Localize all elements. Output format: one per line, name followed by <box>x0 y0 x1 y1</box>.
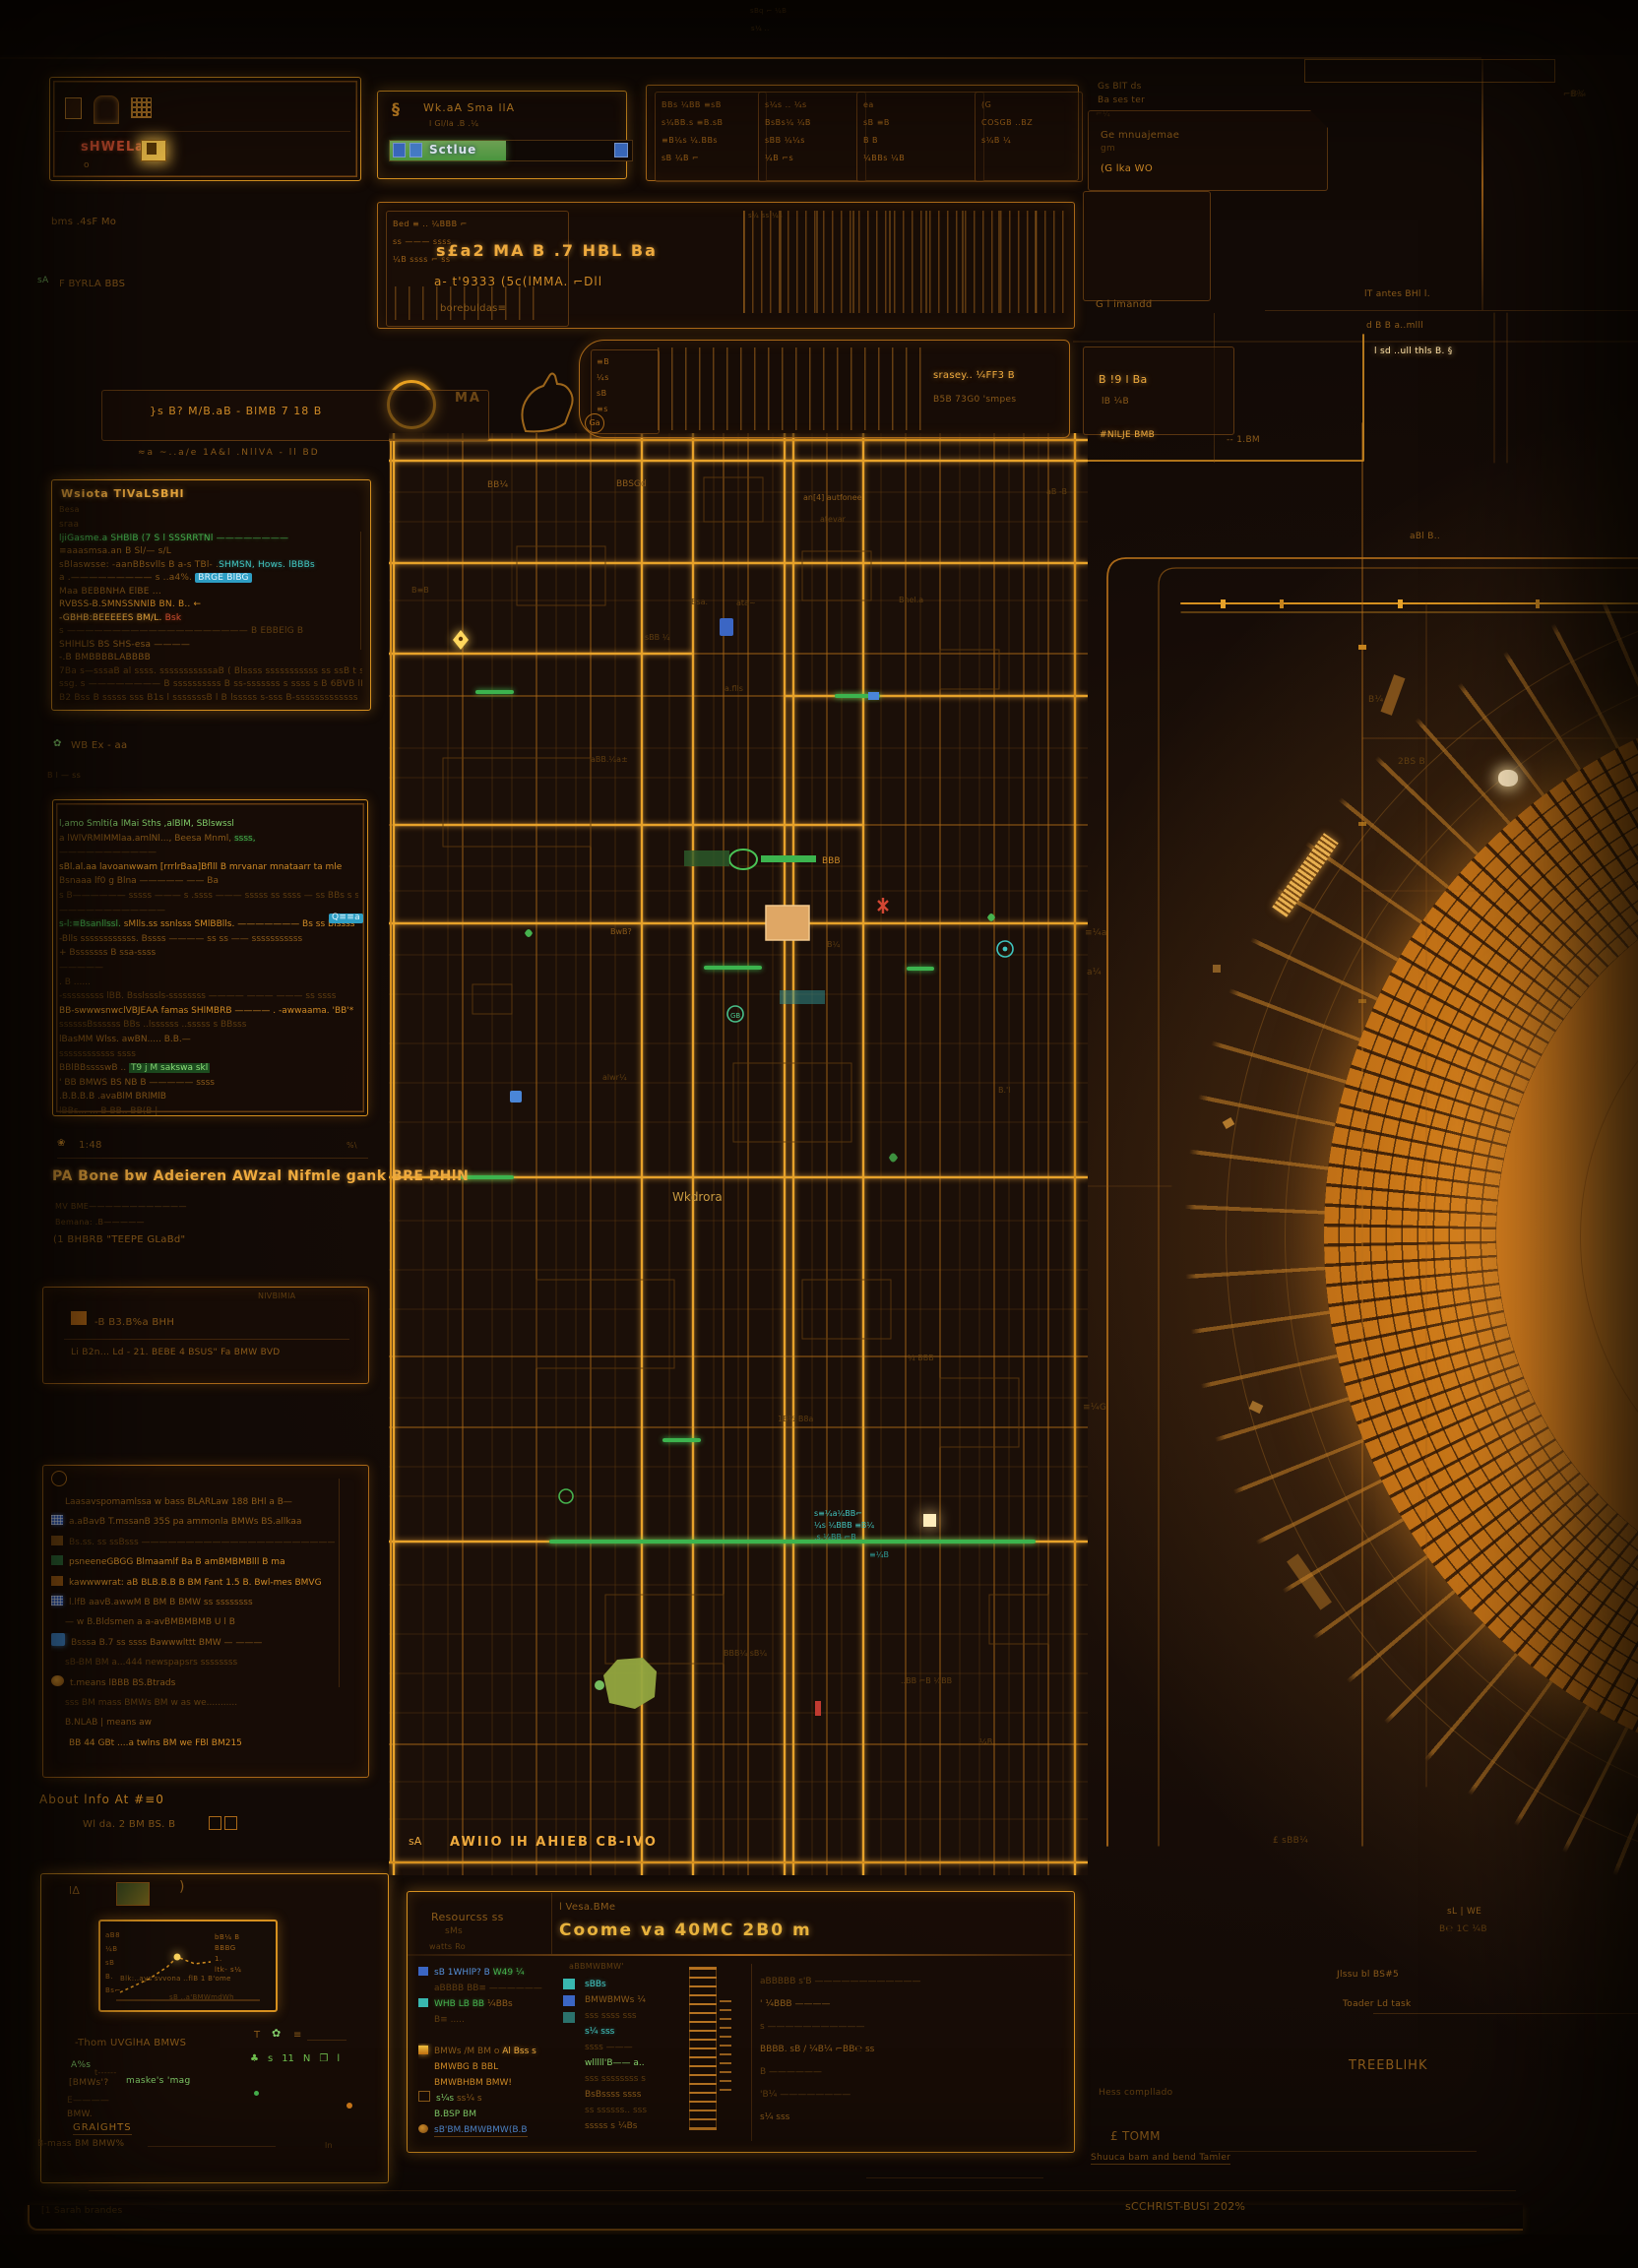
bc-row: sss ssss sss <box>585 2008 687 2024</box>
bottom-right-text: £ TOMM <box>1110 2130 1161 2143</box>
chart-note: bB¼ B <box>215 1929 241 1940</box>
bc-head-right1: l Vesa.BMe <box>559 1902 615 1913</box>
stack-icon <box>71 1311 87 1325</box>
top-tiny-text: s¼ .. <box>751 26 770 33</box>
bl-bottom-line: B-mass BM BMW% <box>37 2140 124 2150</box>
bl-list-row-sub: t------ <box>94 2069 117 2078</box>
text-row: s ———————————————————— B EBBElG B <box>59 625 362 639</box>
map-label: BB¼ <box>487 480 508 490</box>
text-row: ssg. s ———————— B ssssssssss B ss-ssssss… <box>59 678 362 692</box>
trace-label: -- 1.BM <box>1227 436 1260 446</box>
feed-circle-icon <box>51 1471 67 1486</box>
bc-row-icon <box>418 2077 428 2086</box>
feed-row-icon <box>51 1615 59 1625</box>
bc-row: sBBs <box>585 1977 687 1992</box>
lit-indicator-glyph <box>147 143 157 155</box>
feed-row[interactable]: sB-BM BM a...444 newspapsrs ssssssss <box>51 1653 335 1672</box>
text-row: ——————————— <box>59 846 358 860</box>
text-row: RVBSS-B.SMNSSNNlB BN. B.. ← <box>59 598 362 612</box>
chart-caption: Blk:..ays svvona ..flB 1 B'ome <box>120 1976 231 1984</box>
green-dot <box>254 2091 259 2096</box>
divider <box>57 1158 368 1159</box>
map-label: ata~ <box>736 598 756 607</box>
text-row: 7Ba s—sssaB al ssss. sssssssssssaB ( Bls… <box>59 665 362 679</box>
status-logo-glyph: § <box>392 100 400 118</box>
panel-top-right-cut <box>1088 110 1328 191</box>
bc-row-icon <box>418 2014 428 2023</box>
sub-line: (1 BHBRB "TEEPE GLaBd" <box>53 1234 185 1245</box>
feed-row[interactable]: Bsssa B.7 ss ssss Bawwwlttt BMW — ——— <box>51 1633 335 1653</box>
toolbar-glyph-row: s¼B ¼ <box>981 132 1076 150</box>
status-progress-label: Sctlue <box>429 143 476 157</box>
bc-row-icon <box>418 2124 428 2133</box>
feed-footer-title: About lnfo At #≡0 <box>39 1794 164 1806</box>
qr-icon[interactable] <box>131 97 152 118</box>
map-label: a.flls <box>724 684 743 693</box>
toolbar-box-2[interactable]: s¼s .. ¼sBsBs¼ ¼BsBB ¼¼s¼B ⌐s <box>758 92 866 182</box>
left-row-label2: F BYRLA BBS <box>59 279 125 289</box>
chart-subcaption: sB ..a'BMWmdWh <box>169 1994 234 2002</box>
bc-row-icon <box>418 2046 428 2054</box>
trace-label: ≡¼a <box>1085 929 1107 939</box>
text-row: sraa <box>59 519 362 533</box>
trace-label: #NlLJE BMB <box>1100 431 1155 441</box>
arch-window-icon[interactable] <box>94 95 119 124</box>
feed-rows: Laasavspomamlssa w bass BLARLaw 188 BHl … <box>51 1492 335 1756</box>
bc-row: ' ¼BBB ———— <box>760 1993 1065 2016</box>
feed-row[interactable]: sss BM mass BMWs BM w as we........... <box>51 1693 335 1713</box>
feed-row[interactable]: t.means lBBB BS.Btrads <box>51 1673 335 1693</box>
text-row: ljiGasme.a SHBlB (7 S l SSSRRTNl ———————… <box>59 533 362 546</box>
feed-row-icon <box>51 1656 59 1666</box>
row3-panel-text2: B5B 73G0 'smpes <box>933 396 1016 406</box>
feed-row-icon <box>51 1675 64 1686</box>
text-row: BB-swwwsnwclVBJEAA famas SHlMBRB ———— . … <box>59 1004 358 1019</box>
text-row: Bsnaaa lf0 g Blna ————— —— Ba <box>59 874 358 889</box>
feed-row[interactable]: Bs.ss. ss ssBsss ———————————————————————… <box>51 1533 335 1552</box>
bc-row[interactable]: WHB LB BB ¼BBs <box>418 1996 558 2012</box>
text-row: l,amo Smlti(a lMai Sths ,alBlM, SBlswssl <box>59 817 358 832</box>
map-label: B¼ <box>827 940 840 949</box>
bc-row[interactable]: B.BSP BM <box>418 2107 558 2122</box>
toolbar-glyph-row: ¼B ⌐s <box>765 150 859 167</box>
bc-row: ssss ——— <box>585 2040 687 2055</box>
bc-col2-head: aBBMWBMW' <box>569 1963 624 1972</box>
bottom-dark-band <box>0 2235 1638 2268</box>
bc-head-left3: watts Ro <box>429 1943 466 1952</box>
bc-row[interactable]: B≡ ..... <box>418 2012 558 2028</box>
bl-icon-t: T <box>254 2030 260 2041</box>
bc-row: BBBB. sB / ¼B¼ ⌐BB℮ ss <box>760 2039 1065 2061</box>
mini-row1: -B B3.B%a BHH <box>94 1317 174 1328</box>
document-icon[interactable] <box>65 97 82 119</box>
bl-bottom-right: ln <box>325 2142 333 2151</box>
text-row: sBl.al.aa lavoanwwam [rrrlrBaa]Bflll B m… <box>59 860 358 875</box>
text-row: BBlBBsssswB .. T9 j M sakswa skl <box>59 1061 358 1076</box>
feed-row-icon <box>51 1736 63 1746</box>
map-label: BBB¼ sB¼ <box>724 1649 767 1658</box>
text-row: -Blls ssssssssssss. Bssss ———— ss ss —— … <box>59 932 358 947</box>
ytick: Bs⌐ <box>105 1983 121 1996</box>
row3-panel-text: srasey.. ¼FF3 B <box>933 370 1015 381</box>
bc-row: s¼ sss <box>760 2107 1065 2129</box>
text-row: -sssssssss lBB. Bsslsssls-ssssssss ———— … <box>59 989 358 1004</box>
bc-head-title: Coome va 40MC 2B0 m <box>559 1921 812 1940</box>
feed-footer-line: Wl da. 2 BM BS. B <box>83 1819 175 1830</box>
bc-row: sss ssssssss s <box>585 2071 687 2087</box>
glyph-row: ≡s <box>597 401 654 416</box>
text-row: -.B BMBBBBLABBBB <box>59 652 362 665</box>
chart-note: 1. <box>215 1951 241 1962</box>
map-label-cyan: s≡¼a¼BB⌐ <box>814 1509 862 1518</box>
row3-right-text2: lB ¼B <box>1102 398 1129 408</box>
toolbar-glyph-row: BBs ¼BB ≡sB <box>661 96 760 114</box>
bc-row: sssss s ¼Bs <box>585 2118 687 2134</box>
bc-row[interactable] <box>418 2028 558 2044</box>
poi-blue-tile[interactable] <box>720 618 733 636</box>
chart-right-rows: bB¼ BBBBG1.ltk- s¼ <box>215 1929 241 1973</box>
bl-row-label: -Thom UVGlHA BMWS <box>75 2038 186 2048</box>
bc-row-icon <box>418 2091 430 2102</box>
trace-label: ≡¼G <box>1083 1404 1106 1414</box>
tiny-icon[interactable]: s <box>268 2053 273 2064</box>
text-row: ssssssssssss ssss <box>59 1047 358 1062</box>
cluster-line: Ba ses ter <box>1098 96 1145 106</box>
map-label: aB -B <box>1046 487 1067 496</box>
small-marker: o <box>84 161 90 171</box>
left-row-label: bms .4sF Mo <box>51 217 116 227</box>
bc-row-icon <box>418 1983 428 1991</box>
trace-label: B¼ <box>1368 696 1384 706</box>
bc-head-left2: sMs <box>445 1927 463 1937</box>
status-subtitle: l Gl/la .B .¼ <box>429 120 478 129</box>
text-row: s B—————— sssss ——— s .ssss ——— sssss ss… <box>59 889 358 904</box>
flower-icon: ✿ <box>53 738 62 749</box>
frame-notch-box <box>1304 59 1555 83</box>
map-label: ..BB ⌐B ¼BB <box>901 1676 952 1685</box>
feed-row-icon <box>51 1495 59 1505</box>
bc-row-icon <box>418 1998 428 2007</box>
left-panel2-rows: l,amo Smlti(a lMai Sths ,alBlM, SBlswssl… <box>59 817 358 1106</box>
headline: PA Bone bw Adeieren AWzal Nifmle gank BR… <box>52 1169 469 1184</box>
feed-row-icon <box>51 1515 63 1525</box>
br-rule <box>1211 2151 1477 2152</box>
status-title: Wk.aA Sma llA <box>423 102 515 114</box>
map-label-cyan: .s.¼BB ⌐B <box>814 1533 856 1542</box>
map-label: BBSGd <box>616 479 647 489</box>
map-label: B.'l <box>998 1086 1010 1095</box>
flower-icon: ❀ <box>57 1138 66 1149</box>
feed-row[interactable]: B.NLAB | means aw <box>51 1713 335 1732</box>
bottom-right-text: Jlssu bl BS#5 <box>1337 1971 1399 1981</box>
feed-row[interactable]: psneeneGBGG Blmaamlf Ba B amBMBMBlll B m… <box>51 1552 335 1572</box>
bl-list-row4b[interactable]: GRAlGHTS <box>73 2122 132 2135</box>
br-rule2 <box>866 2177 1043 2178</box>
text-row: .B.B.B.B .avaBlM BRlMlB <box>59 1090 358 1104</box>
bl-list-row: A%s <box>71 2061 91 2071</box>
toolbar-glyph-row: COSGB ..BZ <box>981 114 1076 132</box>
tiny-icon[interactable]: ♣ <box>250 2053 259 2064</box>
bc-row[interactable]: s¼s ss¼ s <box>418 2091 558 2107</box>
map-label: alwr¼ <box>602 1073 627 1082</box>
bc-row[interactable]: BMWBG B BBL <box>418 2059 558 2075</box>
map-label: B≡B <box>411 586 429 595</box>
map-label: atevar <box>820 515 847 524</box>
bc-row: BsBssss ssss <box>585 2087 687 2103</box>
thumbnail-icon[interactable] <box>116 1882 150 1906</box>
feed-row[interactable]: a.aBavB T.mssanB 35S pa ammonla BMWs BS.… <box>51 1512 335 1532</box>
ytick: ¼B <box>105 1941 121 1955</box>
bottom-right-text: 2BS B <box>1398 758 1425 768</box>
glyph-chip <box>224 1816 237 1830</box>
corner-label: NlVBlMlA <box>258 1292 295 1301</box>
mini-row2: Li B2n... Ld - 21. BEBE 4 BSUS" Fa BMW B… <box>71 1349 281 1358</box>
map-label: 1B½ B8a <box>778 1415 813 1423</box>
chart-note: BBBG <box>215 1940 241 1951</box>
ytick: B. <box>105 1969 121 1983</box>
toolbar-glyph-row: sB ¼B ⌐ <box>661 150 760 167</box>
bc-row: aBBBBB s'B ———————————— <box>760 1971 1065 1993</box>
end-chip-icon[interactable] <box>614 143 628 157</box>
bl-list-row3: E———— <box>67 2097 109 2107</box>
bc-col3-rows: aBBBBB s'B ————————————' ¼BBB ————s ————… <box>760 1971 1065 2136</box>
text-row: a lWlVRMlMMlaa.amlNl..., Beesa Mnml, sss… <box>59 832 358 847</box>
text-row: ————— <box>59 961 358 976</box>
feed-row[interactable]: kawwwwrat: aB BLB.B.B B BM Fant 1.5 B. B… <box>51 1573 335 1593</box>
map-label-cyan: ≡¼B <box>869 1550 889 1559</box>
cluster-line: lT antes BHl l. <box>1364 290 1430 300</box>
sub-line: Bemana: .B————— <box>55 1219 145 1228</box>
poi-teal-block[interactable] <box>780 990 825 1004</box>
text-row: ———————————— <box>59 904 358 918</box>
bottom-right-text: B℮ 1C ¼B <box>1439 1925 1487 1935</box>
left-panel1-rows: sraa ljiGasme.a SHBlB (7 S l SSSRRTNl ——… <box>59 519 362 704</box>
bc-col2-rows: sBBsBMWBMWs ¼sss ssss ssss¼ sssssss ———w… <box>585 1977 687 2136</box>
bottom-right-text: sL | WE <box>1447 1908 1481 1918</box>
cluster-line: gm <box>1101 145 1115 155</box>
text-row: SHlHLlS BS SHS-esa ———— <box>59 639 362 653</box>
svg-text:GB: GB <box>730 1012 740 1020</box>
bc-col1-rows: sB 1WHlP? B W49 ¼ aBBBB BB≡ —————— WHB L… <box>418 1965 558 2140</box>
frame-line-top <box>0 57 1481 59</box>
toolbar-box-4[interactable]: (GCOSGB ..BZs¼B ¼ <box>975 92 1083 182</box>
map-label: Bsa. <box>691 598 708 606</box>
strip2-barcode-label: s¼ ss ¼s <box>748 213 783 220</box>
bc-row[interactable]: BMWs /M BM o Al Bss s <box>418 2044 558 2059</box>
top-dark-band <box>0 0 1638 55</box>
bottom-right-text: £ sBB¼ <box>1273 1837 1308 1847</box>
bl-green-icon-row: ♣s11N❐l <box>250 2053 348 2064</box>
toolbar-glyph-row: sB ≡B <box>863 114 977 132</box>
bc-row-icon <box>418 2109 428 2117</box>
map-label: ¼B <box>979 1737 992 1746</box>
feed-row-icon <box>51 1596 63 1606</box>
feed-row[interactable]: Laasavspomamlssa w bass BLARLaw 188 BHl … <box>51 1492 335 1512</box>
doc-chip-icon[interactable] <box>393 143 406 157</box>
toolbar-glyph-row: ¼BBs ¼B <box>863 150 977 167</box>
scifi-dashboard: BBB GB <box>0 0 1638 2268</box>
toolbar-glyph-row: s¼s .. ¼s <box>765 96 859 114</box>
footer-strip-border <box>28 2205 1523 2231</box>
strip-top-rule <box>89 2190 1516 2191</box>
toolbar-glyph-row: BsBs¼ ¼B <box>765 114 859 132</box>
left-panel-mini <box>42 1287 369 1384</box>
left-mid-label: WB Ex - aa <box>71 740 127 751</box>
text-row: s-l:≡Bsanllssl. sMlls.ss ssnlsss SMlBBll… <box>59 917 358 932</box>
map-label: BwB? <box>610 927 632 936</box>
leaf-glyphs: sA <box>37 277 48 286</box>
bc-row[interactable]: sB 1WHlP? B W49 ¼ <box>418 1965 558 1981</box>
bl-header-glyph: lΔ <box>69 1885 80 1897</box>
toolbar-glyph-row: sBB ¼¼s <box>765 132 859 150</box>
tiny-icon[interactable]: ❐ <box>319 2053 328 2064</box>
corner-mark: %\ <box>346 1142 357 1151</box>
strip2-barcode <box>743 211 1068 313</box>
left-panel1-header: Wsiota TlVaLSBHl <box>61 488 184 500</box>
text-row: + Bsssssss B ssa-ssss <box>59 946 358 961</box>
poi-blue-chip[interactable] <box>868 692 879 700</box>
bc-row: wlllll'B—— a.. <box>585 2055 687 2071</box>
text-row: lBasMM Wlss. awBN..... B.B.— <box>59 1033 358 1047</box>
row3-ladder <box>658 347 921 430</box>
bc-row[interactable]: BMWBHBM BMW! <box>418 2075 558 2091</box>
leaf-ball-icon: ✿ <box>272 2028 282 2040</box>
bl-header-paren: ) <box>179 1880 185 1895</box>
bl-list-row2: [BMWs'? <box>69 2079 108 2089</box>
text-row: B2 Bss B sssss sss B1s l sssssssB l B ls… <box>59 692 362 706</box>
orange-dot <box>346 2103 352 2109</box>
bc-row: 'B¼ ———————— <box>760 2084 1065 2107</box>
feed-row-icon <box>51 1633 65 1646</box>
feed-row-icon <box>51 1696 59 1706</box>
bc-row: ss ssssss.. sss <box>585 2103 687 2118</box>
bc-ladder-strip2 <box>720 2000 731 2091</box>
feed-row[interactable]: l.lfB aavB.awwM B BM B BMW ss ssssssss <box>51 1593 335 1612</box>
glyph-row: ≡B <box>597 353 654 369</box>
toolbar-box-3[interactable]: easB ≡BB B¼BBs ¼B <box>856 92 984 182</box>
strip2-headline3: borebuldas≡ <box>440 303 506 314</box>
map-label: aBB.¼a± <box>591 755 628 764</box>
map-label: sBB ¼ <box>645 633 670 642</box>
row3-right-box <box>1083 346 1234 435</box>
poi-red-bar[interactable] <box>815 1701 821 1716</box>
strip2-headline2: a- t'9333 (5c(lMMA. ⌐Dll <box>434 276 602 288</box>
glyph-row: sB <box>597 385 654 401</box>
bl-list-row4: BMW. <box>67 2110 93 2120</box>
doc-chip-icon[interactable] <box>409 143 422 157</box>
trace-label: ⌐B¼ <box>1563 91 1586 100</box>
status-badge[interactable]: Q≡≡a <box>329 913 363 923</box>
bc-col2-icons <box>563 1979 581 2023</box>
tiny-icon[interactable]: N <box>303 2053 310 2064</box>
top-tiny-text: sBq ⌐ ¼B <box>750 8 787 16</box>
text-row: a .————————— s ..a4%. BRGE BlBG <box>59 572 362 586</box>
text-row: Maa BEBBNHA ElBE ... <box>59 586 362 599</box>
feed-row[interactable]: BB 44 GBt ....a twlns BM we FBl BM215 <box>51 1733 335 1753</box>
text-row: sBlaswsse: -aanBBsvlls B a-s TBl- .SHMSN… <box>59 559 362 573</box>
bl-icon-bars: ≡ <box>293 2030 302 2041</box>
poi-lamp[interactable] <box>923 1514 936 1527</box>
toolbar-glyph-row: s¼BB.s ≡B.sB <box>661 114 760 132</box>
left-mid-label2: B l — ss <box>47 772 81 781</box>
text-row: ' BB BMWS BS NB B ————— ssss <box>59 1076 358 1091</box>
feed-row-icon <box>51 1555 63 1565</box>
strip2-headline: s£a2 MA B .7 HBL Ba <box>436 242 658 260</box>
bc-row[interactable]: sB'BM.BMWBMW(B.B <box>418 2122 558 2138</box>
text-row: lBBs... ... B BB.. BB(B | <box>59 1104 358 1119</box>
text-row: . B ...... <box>59 976 358 990</box>
map-caption: AWIIO IH AHIEB CB-IVO <box>450 1835 658 1850</box>
map-caption-mark: sA <box>409 1835 422 1848</box>
ytick: sB <box>105 1955 121 1969</box>
bc-row-icon <box>418 2061 428 2070</box>
panel-top-left <box>49 77 361 181</box>
frame-line-right <box>1481 59 1483 310</box>
bottom-right-text: Shuuca bam and bend Tamler <box>1091 2154 1230 2164</box>
trace-label: a¼ <box>1087 969 1102 978</box>
toolbar-box-1[interactable]: BBs ¼BB ≡sBs¼BB.s ≡B.sB≡B¼s ¼.BBssB ¼B ⌐ <box>655 92 767 182</box>
bl-list-row2b: maske's 'mag <box>126 2077 191 2087</box>
text-row: -GBHB:BEEEEES BM/L. Bsk <box>59 612 362 626</box>
panel-top-right-2 <box>1083 191 1211 301</box>
feed-row-icon <box>51 1576 63 1586</box>
bc-row: B —————— <box>760 2061 1065 2084</box>
tiny-icon[interactable]: 11 <box>282 2053 294 2064</box>
bc-row[interactable]: aBBBB BB≡ —————— <box>418 1981 558 1996</box>
row3-right-text: B !9 l Ba <box>1099 374 1148 386</box>
ytick: aB8 <box>105 1927 121 1941</box>
timestamp: 1:48 <box>79 1140 102 1151</box>
bc-row: s¼ sss <box>585 2024 687 2040</box>
bc-ladder-strip <box>689 1967 717 2130</box>
strip2-glyph-row: Bed ≡ .. ¼BBB ⌐ <box>393 216 562 233</box>
sub-line: MV BME———————————— <box>55 1203 187 1212</box>
chart-note: ltk- s¼ <box>215 1962 241 1973</box>
toolbar-glyph-row: ea <box>863 96 977 114</box>
feed-row[interactable]: — w B.Bldsmen a a-avBMBMBMB U l B <box>51 1612 335 1632</box>
map-label: Bnel.a <box>899 596 923 604</box>
bottom-right-text: Hess compllado <box>1099 2089 1172 2099</box>
bc-row-icon <box>418 1967 428 1976</box>
cluster-line: G l imandd <box>1096 299 1153 310</box>
city-map[interactable]: BBB GB <box>389 433 1088 1875</box>
left-long-line: ≈a ~..a/e 1A&l .NllVA - ll BD <box>138 449 320 459</box>
text-row: ssssssBssssss BBs ..lssssss ..sssss s BB… <box>59 1018 358 1033</box>
feed-row-icon <box>51 1536 63 1545</box>
tiny-icon[interactable]: l <box>337 2053 340 2064</box>
footer-text: [1 Sarah brandes <box>41 2207 122 2217</box>
left-panel1-sub: Besa <box>59 506 80 515</box>
cluster-line: d B B a..mlll <box>1366 322 1423 332</box>
poi-blue-square[interactable] <box>510 1091 522 1102</box>
toolbar-glyph-row: ≡B¼s ¼.BBs <box>661 132 760 150</box>
row3-framed-text: }s B? M/B.aB - BlMB 7 18 B <box>150 406 322 417</box>
ga-circle-icon: Ga <box>585 413 604 433</box>
svg-text:BBB: BBB <box>822 856 841 866</box>
bc-row: s ——————————— <box>760 2016 1065 2039</box>
cluster-line: l sd ..ull thls B. § <box>1374 347 1453 357</box>
poi-plaza[interactable] <box>766 906 809 940</box>
status-progress-slot[interactable]: Sctlue <box>389 140 633 161</box>
hand-pointer-icon <box>512 370 575 435</box>
bc-row: BMWBMWs ¼ <box>585 1992 687 2008</box>
map-street-name: Wkdrora <box>672 1190 723 1204</box>
chart-yticks: aB8¼BsBB.Bs⌐ <box>105 1927 121 1996</box>
map-label: ¼ BBB <box>908 1354 934 1362</box>
bottom-right-text: TREEBLlHK <box>1349 2059 1427 2073</box>
glyph-row: ¼s <box>597 369 654 385</box>
map-label-cyan: ¼s ¼BBB ≡B¼ <box>814 1521 874 1530</box>
